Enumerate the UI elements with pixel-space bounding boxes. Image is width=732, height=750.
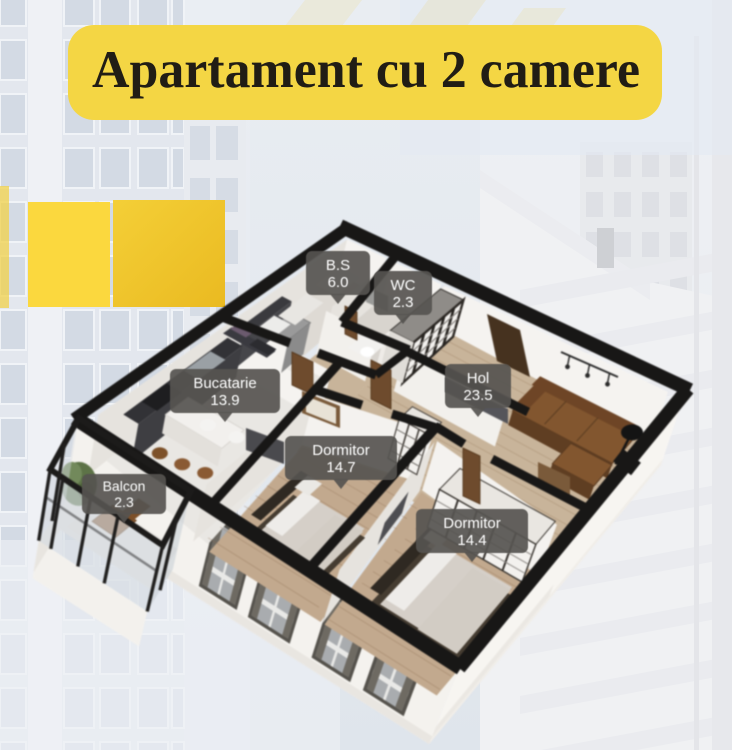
svg-text:Dormitor: Dormitor — [312, 442, 370, 459]
svg-text:WC: WC — [391, 277, 416, 294]
svg-text:Hol: Hol — [467, 370, 490, 387]
svg-text:B.S: B.S — [326, 257, 350, 274]
svg-text:23.5: 23.5 — [463, 387, 492, 404]
svg-text:Balcon: Balcon — [103, 478, 146, 494]
svg-text:Dormitor: Dormitor — [443, 515, 501, 532]
svg-text:14.7: 14.7 — [326, 459, 355, 476]
svg-text:2.3: 2.3 — [393, 294, 414, 311]
svg-text:6.0: 6.0 — [328, 274, 349, 291]
svg-text:Bucatarie: Bucatarie — [193, 375, 256, 392]
svg-text:14.4: 14.4 — [457, 532, 486, 549]
svg-text:13.9: 13.9 — [210, 392, 239, 409]
svg-text:Apartament cu 2 camere: Apartament cu 2 camere — [92, 41, 640, 99]
svg-text:2.3: 2.3 — [114, 494, 134, 510]
